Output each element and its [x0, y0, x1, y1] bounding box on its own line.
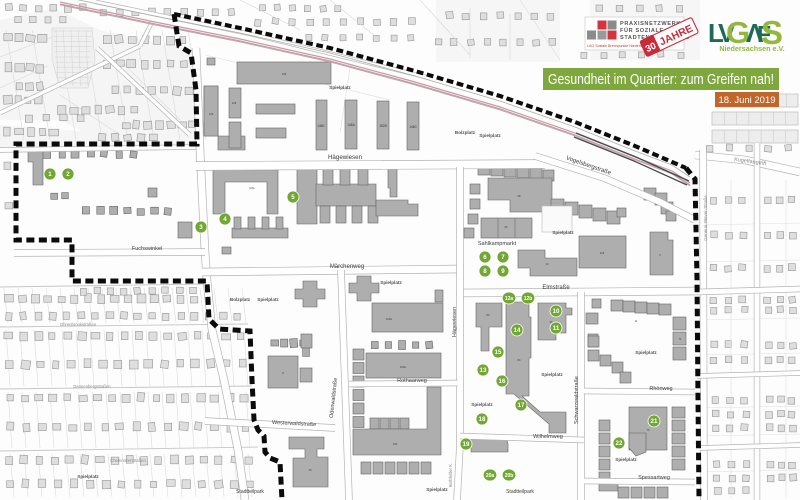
- svg-text:16: 16: [499, 378, 506, 385]
- svg-text:146C: 146C: [317, 124, 325, 128]
- svg-text:Spielplatz: Spielplatz: [552, 230, 574, 235]
- svg-text:4: 4: [223, 216, 227, 223]
- svg-text:128: 128: [232, 101, 237, 105]
- svg-text:18. Juni 2019: 18. Juni 2019: [718, 95, 775, 106]
- svg-text:126: 126: [209, 112, 214, 116]
- svg-text:14: 14: [514, 327, 521, 334]
- svg-text:105: 105: [282, 72, 287, 76]
- svg-text:160: 160: [393, 442, 398, 446]
- svg-text:Chemnitzerstraßen: Chemnitzerstraßen: [110, 458, 146, 463]
- svg-text:Spielplatz: Spielplatz: [541, 372, 563, 377]
- svg-text:Niedersachsen e.V.: Niedersachsen e.V.: [719, 44, 784, 53]
- svg-text:Spielplatz: Spielplatz: [77, 474, 99, 479]
- svg-text:General-Wever-Straße: General-Wever-Straße: [703, 195, 708, 241]
- svg-text:Dannenbergstraßen: Dannenbergstraßen: [73, 384, 111, 389]
- svg-text:Spielplatz: Spielplatz: [615, 457, 637, 462]
- svg-text:Stadtteilpark: Stadtteilpark: [506, 489, 534, 495]
- svg-text:1: 1: [48, 171, 52, 178]
- svg-text:Fuchswinkel: Fuchswinkel: [132, 246, 162, 252]
- svg-text:13: 13: [480, 367, 487, 374]
- svg-text:21: 21: [651, 418, 658, 425]
- svg-text:Spielplatz: Spielplatz: [329, 85, 351, 90]
- svg-text:Spielplatz: Spielplatz: [380, 280, 402, 285]
- svg-text:2: 2: [66, 171, 70, 178]
- svg-text:Gesundheit im Quartier: zum Gr: Gesundheit im Quartier: zum Greifen nah!: [548, 72, 774, 88]
- svg-text:Bothfelder K.: Bothfelder K.: [448, 463, 453, 487]
- svg-text:160A: 160A: [386, 317, 392, 321]
- svg-text:5: 5: [291, 194, 295, 201]
- svg-text:Sahlkampmarkt: Sahlkampmarkt: [478, 241, 517, 247]
- svg-text:19: 19: [463, 441, 470, 448]
- svg-text:Bolzplatz: Bolzplatz: [230, 297, 251, 302]
- svg-text:12b: 12b: [524, 296, 533, 302]
- svg-text:Spessartweg: Spessartweg: [638, 475, 670, 481]
- svg-text:3: 3: [199, 224, 203, 231]
- svg-text:Ohrenbrookstraßen: Ohrenbrookstraßen: [60, 322, 97, 327]
- svg-text:22: 22: [616, 440, 623, 447]
- svg-text:146A: 146A: [347, 123, 355, 127]
- svg-text:KiTa: KiTa: [249, 186, 255, 190]
- svg-text:Spielplatz: Spielplatz: [257, 297, 279, 302]
- svg-text:Märchenweg: Märchenweg: [330, 264, 364, 270]
- svg-text:Hägewiesen: Hägewiesen: [452, 307, 458, 337]
- svg-text:103: 103: [600, 251, 605, 255]
- svg-text:20a: 20a: [486, 473, 495, 479]
- svg-text:160A: 160A: [400, 365, 406, 369]
- svg-text:9: 9: [501, 268, 505, 275]
- svg-text:7: 7: [501, 254, 505, 261]
- svg-text:8: 8: [483, 268, 487, 275]
- svg-text:15: 15: [495, 349, 502, 356]
- svg-text:152B: 152B: [379, 124, 386, 128]
- svg-text:Rhönweg: Rhönweg: [649, 386, 672, 392]
- svg-text:Hägewiesen: Hägewiesen: [328, 154, 363, 161]
- svg-text:Schwarzwaldstraße: Schwarzwaldstraße: [574, 376, 580, 424]
- svg-text:6: 6: [483, 254, 487, 261]
- svg-text:20b: 20b: [505, 473, 514, 479]
- svg-text:Bolzplatz: Bolzplatz: [455, 130, 476, 135]
- svg-text:18: 18: [479, 416, 486, 423]
- svg-text:Elmstraße: Elmstraße: [542, 285, 570, 291]
- svg-text:Stadtteilpark: Stadtteilpark: [236, 489, 264, 495]
- svg-text:10: 10: [553, 308, 560, 315]
- svg-text:Wilhelmweg: Wilhelmweg: [533, 434, 563, 440]
- svg-text:Spielplatz: Spielplatz: [426, 487, 448, 492]
- svg-text:146C: 146C: [409, 125, 417, 129]
- svg-text:17: 17: [518, 402, 525, 409]
- svg-text:Spielplatz: Spielplatz: [479, 133, 501, 138]
- svg-text:Rothaarweg: Rothaarweg: [397, 378, 427, 384]
- svg-text:Spielplatz: Spielplatz: [471, 402, 493, 407]
- svg-text:11: 11: [553, 325, 560, 332]
- svg-text:Spielplatz: Spielplatz: [635, 350, 657, 355]
- svg-text:12a: 12a: [505, 296, 514, 302]
